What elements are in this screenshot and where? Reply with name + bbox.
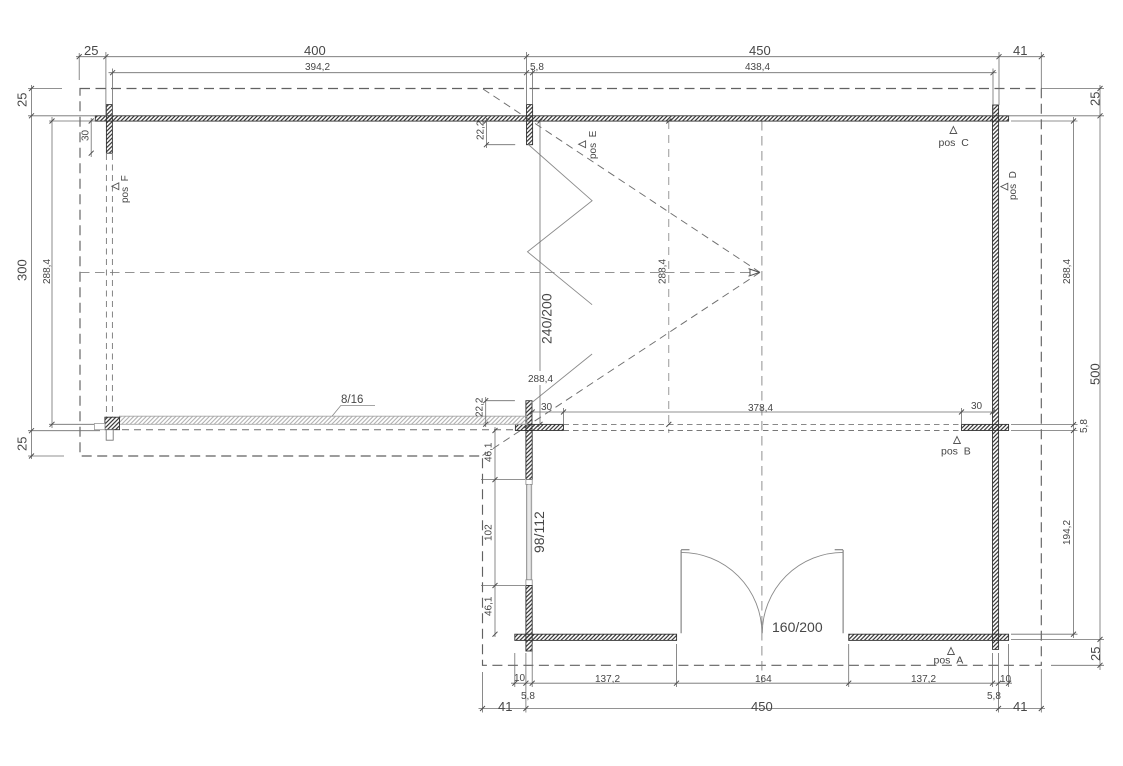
svg-text:194,2: 194,2 xyxy=(1062,520,1073,545)
svg-text:10: 10 xyxy=(1000,674,1012,685)
svg-text:5,8: 5,8 xyxy=(1079,419,1090,433)
svg-text:5,8: 5,8 xyxy=(530,62,544,73)
svg-text:46,1: 46,1 xyxy=(484,442,495,462)
svg-text:378,4: 378,4 xyxy=(748,403,773,414)
svg-text:pos D: pos D xyxy=(1008,171,1019,200)
svg-text:25: 25 xyxy=(84,43,98,58)
svg-text:137,2: 137,2 xyxy=(595,674,620,685)
svg-text:25: 25 xyxy=(1088,647,1103,661)
svg-text:300: 300 xyxy=(15,259,30,281)
svg-text:164: 164 xyxy=(755,674,772,685)
svg-text:pos E: pos E xyxy=(588,130,599,159)
svg-text:98/112: 98/112 xyxy=(531,511,547,553)
svg-text:pos C: pos C xyxy=(939,137,970,149)
svg-text:25: 25 xyxy=(1087,92,1102,106)
svg-text:30: 30 xyxy=(971,401,983,412)
svg-text:22,2: 22,2 xyxy=(475,397,486,417)
svg-text:30: 30 xyxy=(81,129,92,141)
svg-text:41: 41 xyxy=(498,699,512,714)
svg-text:400: 400 xyxy=(304,43,326,58)
svg-text:450: 450 xyxy=(751,699,773,714)
svg-text:288,4: 288,4 xyxy=(528,374,553,385)
svg-text:5,8: 5,8 xyxy=(987,691,1001,702)
svg-text:pos A: pos A xyxy=(934,655,964,667)
svg-text:137,2: 137,2 xyxy=(911,674,936,685)
svg-text:394,2: 394,2 xyxy=(305,62,330,73)
svg-text:46,1: 46,1 xyxy=(484,596,495,616)
svg-text:288,4: 288,4 xyxy=(42,259,53,284)
svg-text:pos B: pos B xyxy=(941,446,971,458)
svg-text:288,4: 288,4 xyxy=(1062,259,1073,284)
svg-text:160/200: 160/200 xyxy=(772,619,823,635)
svg-text:438,4: 438,4 xyxy=(745,62,770,73)
svg-text:500: 500 xyxy=(1087,363,1102,385)
svg-text:102: 102 xyxy=(484,524,495,541)
svg-text:25: 25 xyxy=(15,93,30,107)
svg-text:8/16: 8/16 xyxy=(341,394,363,406)
svg-text:240/200: 240/200 xyxy=(539,293,555,344)
svg-text:pos F: pos F xyxy=(120,175,131,203)
svg-text:288,4: 288,4 xyxy=(658,259,669,284)
svg-text:10: 10 xyxy=(514,673,526,684)
svg-text:41: 41 xyxy=(1013,43,1027,58)
svg-text:30: 30 xyxy=(541,402,553,413)
svg-text:450: 450 xyxy=(749,43,771,58)
svg-text:25: 25 xyxy=(15,437,30,451)
svg-text:22,2: 22,2 xyxy=(476,120,487,140)
svg-text:5,8: 5,8 xyxy=(521,691,535,702)
svg-text:41: 41 xyxy=(1013,699,1027,714)
